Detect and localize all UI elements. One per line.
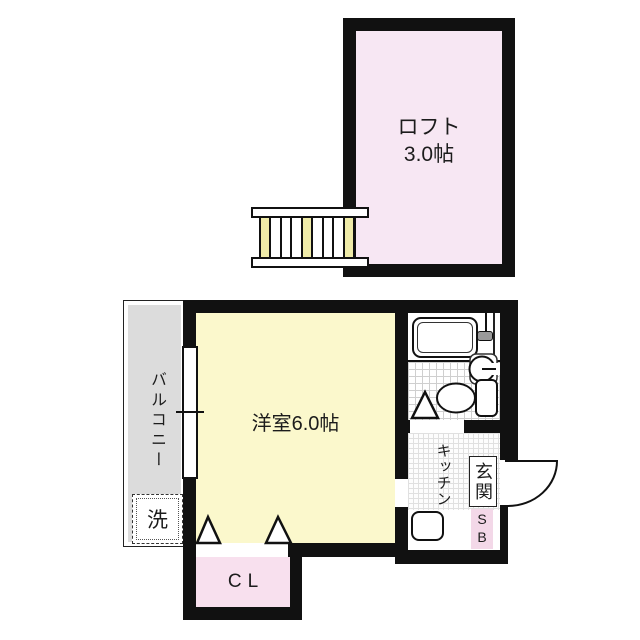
toilet-bowl: [437, 384, 475, 413]
toilet-tank: [476, 380, 497, 416]
bathroom-door-triangle: [412, 392, 438, 418]
floorplan-canvas: ロフト 3.0帖 バルコニー 洗 CL: [0, 0, 640, 640]
closet-door-triangle: [197, 517, 220, 543]
entrance-door-arc: [505, 461, 557, 506]
closet-door-triangle: [266, 517, 291, 543]
fixtures-overlay: [0, 0, 640, 640]
